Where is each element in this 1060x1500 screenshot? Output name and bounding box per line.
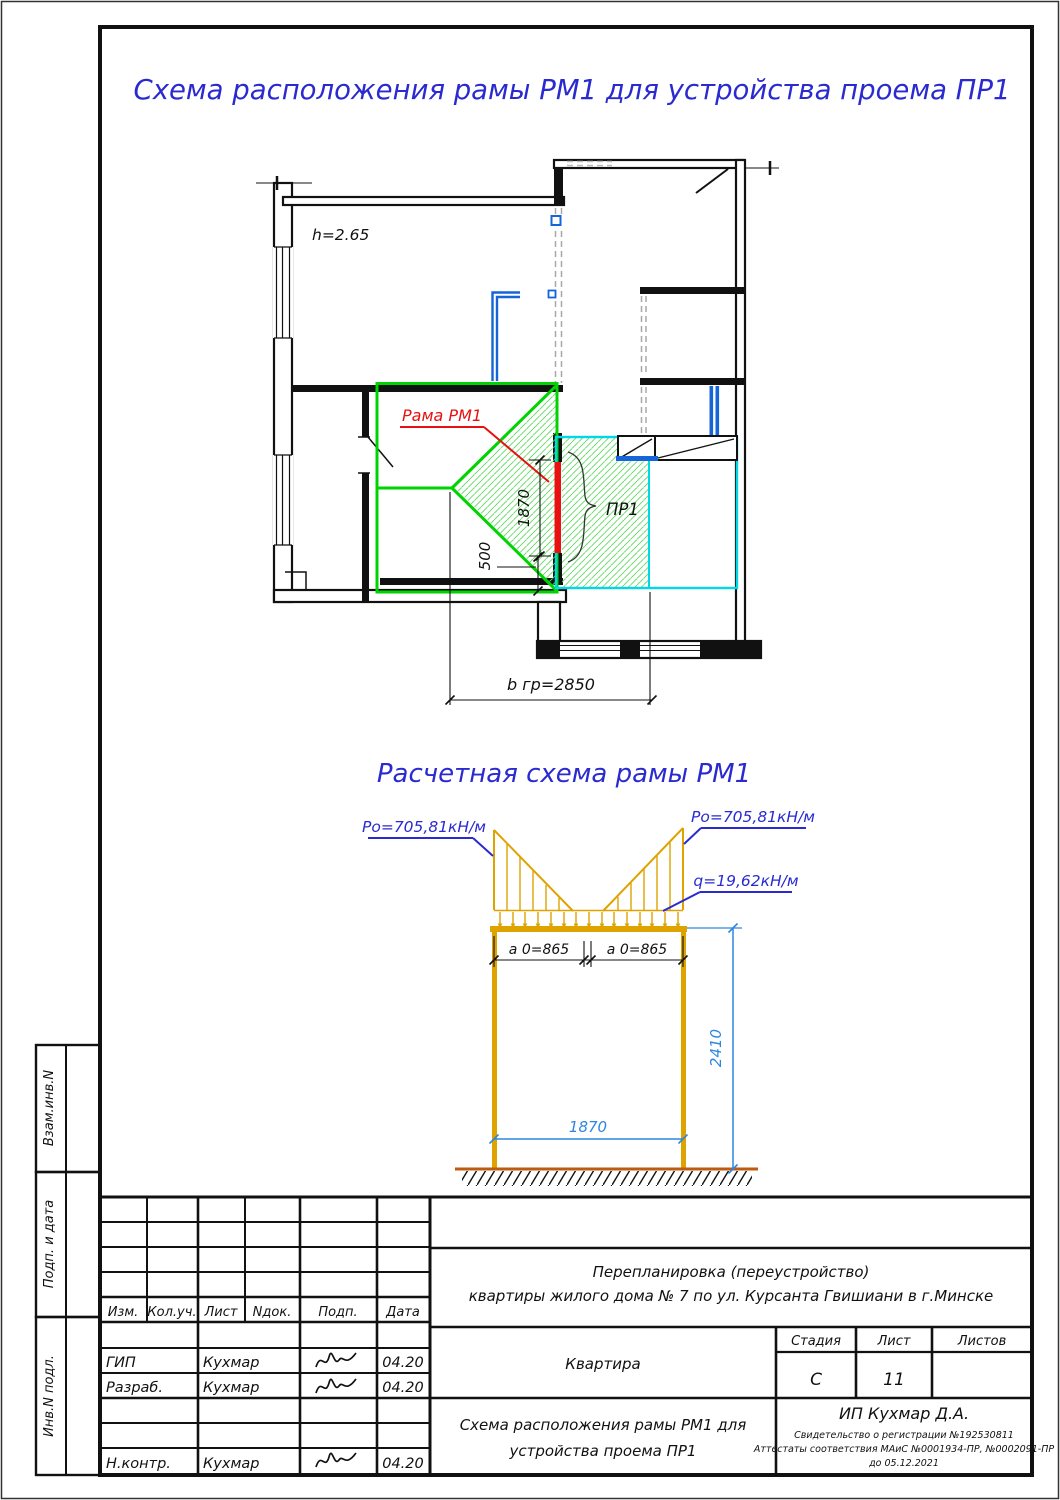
col-podp: Подп. <box>318 1305 357 1320</box>
row-name: Кухмар <box>203 1355 260 1371</box>
row-date: 04.20 <box>382 1380 424 1396</box>
dim-a-right: a 0=865 <box>607 942 667 958</box>
opening-label: ПР1 <box>606 500 639 519</box>
company-cert3: до 05.12.2021 <box>868 1458 939 1469</box>
col-izm: Изм. <box>108 1305 139 1320</box>
dim-pier: 500 <box>476 542 494 571</box>
project-name-line2: квартиры жилого дома № 7 по ул. Курсанта… <box>469 1287 994 1305</box>
page-title: Схема расположения рамы РМ1 для устройст… <box>134 74 1011 106</box>
object-name: Квартира <box>565 1355 640 1373</box>
ground <box>455 1169 758 1186</box>
scheme-title: Расчетная схема рамы РМ1 <box>377 759 751 789</box>
sheet-value: 11 <box>883 1370 905 1390</box>
row-role: ГИП <box>106 1355 136 1371</box>
row-role: Н.контр. <box>106 1456 171 1472</box>
col-koluch: Кол.уч. <box>147 1305 196 1320</box>
drawing-sheet: Схема расположения рамы РМ1 для устройст… <box>0 0 1060 1500</box>
dim-opening-height: 1870 <box>515 489 533 527</box>
sheet-frame <box>2 2 1059 1499</box>
stamp-inv-podl: Инв.N подл. <box>42 1355 57 1437</box>
vent-shaft <box>616 436 737 461</box>
stamp-podp-data: Подп. и дата <box>42 1200 57 1289</box>
dim-height: 2410 <box>707 1029 725 1067</box>
frame-label: Рама РМ1 <box>402 406 482 425</box>
sheets-label: Листов <box>957 1334 1007 1349</box>
row-role: Разраб. <box>106 1380 163 1396</box>
row-date: 04.20 <box>382 1355 424 1371</box>
doc-title-line2: устройства проема ПР1 <box>509 1442 697 1460</box>
dim-a-left: a 0=865 <box>509 942 569 958</box>
company-name: ИП Кухмар Д.А. <box>839 1404 969 1423</box>
row-name: Кухмар <box>203 1380 260 1396</box>
sheet-label: Лист <box>877 1334 911 1349</box>
stamp-vzam-inv: Взам.инв.N <box>42 1070 57 1146</box>
company-cert2: Аттестаты соответствия МАиС №0001934-ПР,… <box>753 1444 1054 1455</box>
company-cert1: Свидетельство о регистрации №192530811 <box>794 1430 1014 1441</box>
load-left-label: Po=705,81кН/м <box>362 818 486 836</box>
room-height-note: h=2.65 <box>312 226 369 244</box>
doc-title-line1: Схема расположения рамы РМ1 для <box>460 1416 747 1434</box>
load-right-label: Po=705,81кН/м <box>691 808 815 826</box>
col-list: Лист <box>204 1305 238 1320</box>
row-date: 04.20 <box>382 1456 424 1472</box>
col-ndok: Nдок. <box>253 1305 292 1320</box>
col-data: Дата <box>385 1305 420 1320</box>
project-name-line1: Перепланировка (переустройство) <box>593 1263 870 1281</box>
dim-span: 1870 <box>569 1118 607 1136</box>
row-name: Кухмар <box>203 1456 260 1472</box>
load-q-label: q=19,62кН/м <box>693 872 798 890</box>
stage-value: С <box>810 1370 822 1390</box>
dim-opening-width: b гр=2850 <box>507 675 595 694</box>
stage-label: Стадия <box>791 1334 841 1349</box>
